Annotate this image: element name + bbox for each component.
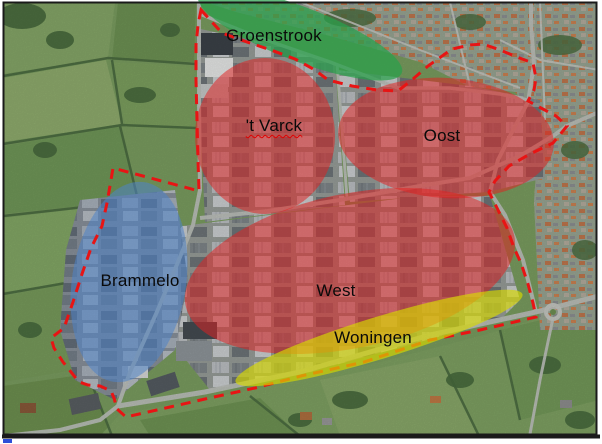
blue-corner-mark <box>3 439 12 443</box>
map-figure: Groenstrook't VarckOostWestBrammeloWonin… <box>0 0 602 444</box>
map-canvas <box>0 0 602 444</box>
zone-t-varck <box>195 58 335 214</box>
